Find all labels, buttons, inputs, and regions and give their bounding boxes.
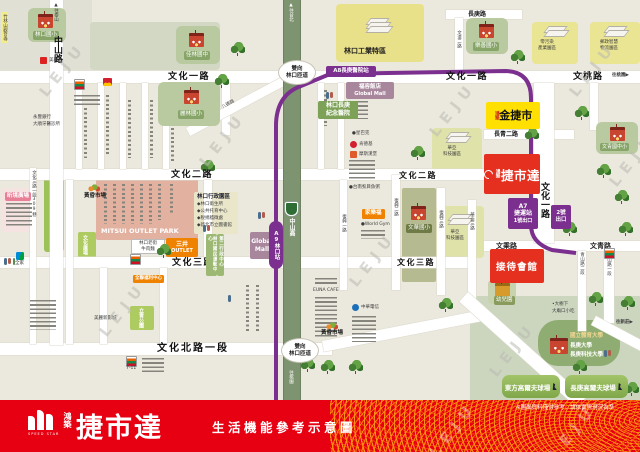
admin-bullet-3: ◆稅捐稽徵處 xyxy=(197,217,223,222)
school-jialin-jh-label: 佳林國中 xyxy=(184,51,210,60)
road-label-wenhua2-a: 文化二路 xyxy=(171,171,213,180)
tree-icon xyxy=(596,164,611,176)
brand-prefix: 鴻築 xyxy=(62,412,73,428)
treefood-label1: •大樹下 xyxy=(552,303,568,308)
worldgym-label: ●World Gym xyxy=(361,223,390,228)
ramp-south: 雙向 林口匝道 xyxy=(281,338,319,363)
logo-subtext: SPEED STAR xyxy=(28,432,59,436)
golf-east-button: 東方高爾夫球場 xyxy=(502,375,560,398)
post-logistics-label: 郵政智慧 物流園區 xyxy=(600,40,618,52)
people-icons xyxy=(258,212,265,219)
admin-park-title: 林口行政園區 xyxy=(197,195,230,201)
road-label-changqing2: 長青二路 xyxy=(494,132,518,138)
doctor-icons xyxy=(326,92,333,99)
mcdonalds-icon xyxy=(103,78,112,86)
ramp-north: 雙向 林口匝道 xyxy=(278,60,316,85)
project-jieshida-box: 鴻築 捷市達 xyxy=(484,154,540,194)
tree-icon xyxy=(348,360,363,372)
brand-banner: LEJU LEJU SPEED STAR 鴻築 捷市達 生活機能參考示意圖 ※圖… xyxy=(0,400,640,452)
road-label-wendao2: 文道二路 xyxy=(456,30,461,48)
road-label-huaya3: 華亞三路 xyxy=(469,212,474,230)
sports-center-label: 林口國民運動中心 xyxy=(206,234,217,276)
road-label-lane309: 文化三路一段309巷 xyxy=(31,170,36,217)
location-map-flyer: 中山高 ▲往台北 往桃園 雙向 林口匝道 雙向 林口匝道 A8長庚醫院站 A9林… xyxy=(0,0,640,452)
dir-taoyuan-south: 往桃園 xyxy=(288,370,293,384)
highway-shield-icon xyxy=(285,202,298,216)
seven-eleven-icon xyxy=(74,79,85,90)
kfc-label: 肯德基 xyxy=(359,143,373,148)
people-icons xyxy=(4,258,15,265)
road-label-wenhua1-v: 文化一路 xyxy=(539,182,548,218)
uni-cgu: 長庚大學 xyxy=(570,344,592,350)
people-icons xyxy=(228,295,231,302)
road-label-fuxing1: 復興一路 xyxy=(341,214,346,232)
road-label-qingshan2: 青山路二段 xyxy=(579,252,584,275)
dir-taishan: ▲往泰山 xyxy=(53,3,58,22)
family-label: 全家 xyxy=(15,262,24,267)
project-goldcity-prefix: 鴻築 xyxy=(494,111,499,120)
hospital-label: 林口長庚 xyxy=(326,102,350,110)
pxmart-box: 全聯福利中心 xyxy=(133,275,164,283)
globalmall-label: Mall xyxy=(255,246,269,254)
market2-label: 黃昏市場 xyxy=(321,331,343,337)
mrt-a9-station: A9林口站 xyxy=(269,221,283,269)
golf-changgeng-label: 長庚高爾夫球場 xyxy=(570,382,616,392)
road-label-wenhua1-b: 文化一路 xyxy=(446,73,488,82)
map-canvas: 中山高 ▲往台北 往桃園 雙向 林口匝道 雙向 林口匝道 A8長庚醫院站 A9林… xyxy=(0,0,640,400)
mrt-exit2-label: 2號 xyxy=(556,210,565,217)
huaya-line2: 科技園區 xyxy=(446,236,464,242)
zero-line2: 產業園區 xyxy=(538,46,556,52)
tree-icon xyxy=(510,50,525,62)
uni-cgust: 長庚科技大學 xyxy=(570,353,603,359)
ramp-text: 雙向 xyxy=(294,344,305,351)
meilian-label: 美聯社 xyxy=(49,59,63,64)
kfc-icon xyxy=(350,141,357,148)
zero-line1: 零污染 xyxy=(538,40,556,46)
treefood-label2: 大廟口小吃 xyxy=(552,310,575,315)
golf-east-label: 東方高爾夫球場 xyxy=(505,382,551,392)
mos-label: 摩斯漢堡 xyxy=(359,153,377,158)
school-wenhua-es-label: 文華國小 xyxy=(406,224,432,233)
ramp-text: 林口匝道 xyxy=(286,73,308,80)
dir-taoyuan-east: 往桃園▶ xyxy=(612,74,629,79)
hospital-box: 林口長庚 紀念醫院 xyxy=(318,101,358,119)
meilian-icon xyxy=(40,57,47,64)
towers-logo-icon xyxy=(28,408,58,430)
liqing-park-label: 立青公園 xyxy=(138,308,143,328)
bank-label: 永豐銀行 xyxy=(33,116,51,121)
post-line1: 郵政智慧 xyxy=(600,40,618,46)
zero-pollution-label: 零污染 產業園區 xyxy=(538,40,556,52)
fullon-label: 福容飯店 xyxy=(359,84,381,91)
admin-bullet-2: ◆公共托育中心 xyxy=(197,210,227,215)
highway-label: 中山高 xyxy=(288,218,294,236)
mitsui-zh-label: 三井 xyxy=(176,241,188,248)
admin-bullet-1: ◆林口衛生所 xyxy=(197,203,223,208)
hospital-label: 紀念醫院 xyxy=(326,110,350,118)
school-wenqing-label: 文青國中小 xyxy=(600,143,629,151)
uni-ntsu: 國立體育大學 xyxy=(570,334,603,340)
people-icons xyxy=(203,225,210,232)
meilixin-label: 美麗新影城 xyxy=(94,317,117,322)
road-label-wenhua2-b: 文化二路 xyxy=(399,172,437,180)
euna-cafe-label: EUNA CAFE xyxy=(313,289,339,294)
project-goldcity-box: 鴻築 金捷市 xyxy=(486,102,540,129)
starbucks-label: ●星巴克 xyxy=(352,132,369,137)
brand-logo: SPEED STAR xyxy=(28,408,59,436)
golf-changgeng-button: 長庚高爾夫球場 xyxy=(565,375,628,398)
project-goldcity-name: 金捷市 xyxy=(499,110,532,121)
banner-disclaimer: ※圖面資料僅供參考，請依實際現況為準 xyxy=(516,403,614,411)
mrt-exit2-label: 出口 xyxy=(555,217,566,224)
market-veggie-icon xyxy=(88,184,100,192)
market-veggie-icon xyxy=(326,322,338,330)
road-label-changgeng: 長庚路 xyxy=(468,12,486,18)
seven-eleven-icon xyxy=(604,248,615,259)
seven-eleven-icon xyxy=(130,254,141,265)
familymart-icon xyxy=(16,252,24,260)
dir-taipei: ▲往台北 xyxy=(288,3,293,22)
cht-icon xyxy=(352,304,359,311)
huaya-south-label: 華亞 科技園區 xyxy=(446,230,464,242)
kindergarten-label: 幼兒園 xyxy=(494,296,515,305)
post-line2: 物流園區 xyxy=(600,46,618,52)
brand-name: 捷市達 xyxy=(76,406,163,445)
reception-center-label: 接待會館 xyxy=(496,259,538,273)
mos-burger-icon xyxy=(350,151,357,158)
road-label-wenhua1-a: 文化一路 xyxy=(168,73,210,82)
mrt-a7-station-exit1: A7 捷運站 1號出口 xyxy=(508,198,538,229)
road-label-wenhua3-b: 文化三路 xyxy=(397,259,435,267)
school-leshan-es-label: 樂善國小 xyxy=(473,42,499,51)
road-label-fuxing3: 復興三路 xyxy=(438,210,443,228)
tree-icon xyxy=(320,360,335,372)
dir-xinzhuang: 往新莊▶ xyxy=(616,321,633,326)
dentist-label: 大順牙醫診所 xyxy=(33,123,60,128)
mrt-a7-exit2: 2號 出口 xyxy=(551,205,571,229)
tree-icon xyxy=(410,146,425,158)
industry-label: 林口工業特區 xyxy=(344,48,386,55)
cht-label: 中華電信 xyxy=(361,306,379,311)
mrt-a7-label: 捷運站 xyxy=(514,210,532,218)
second-admin-label: 第二行政中心 xyxy=(217,234,224,276)
beef-noodle-label: 牛肉麵 xyxy=(141,247,155,252)
huaya-north-label: 華亞 科技園區 xyxy=(443,146,461,158)
market1-label: 黃昏市場 xyxy=(84,194,106,200)
tree-icon xyxy=(614,190,629,202)
road-label-fuxing2: 復興二路 xyxy=(393,198,398,216)
tree-icon xyxy=(214,74,229,86)
project-jieshida-prefix: 鴻築 xyxy=(494,169,500,178)
people-icons xyxy=(604,350,611,357)
reception-center-box: 接待會館 xyxy=(490,249,544,283)
tree-icon xyxy=(588,292,603,304)
mrt-a8-label: A8長庚醫院站 xyxy=(333,68,369,75)
mrt-a9-label: A9林口站 xyxy=(273,231,280,260)
tree-icon xyxy=(230,42,245,54)
globalmall-label: Global Mall xyxy=(354,91,385,98)
mrt-a8-station: A8長庚醫院站 xyxy=(326,66,376,77)
mrt-a7-label: 1號出口 xyxy=(514,218,532,224)
tree-icon xyxy=(620,296,635,308)
road-label-wenhuabei: 文化北路一段 xyxy=(157,344,229,354)
tree-icon xyxy=(156,244,171,256)
ramp-text: 雙向 xyxy=(291,66,302,73)
wenhua-plaza-label: 文化廣場 xyxy=(82,235,87,255)
tree-icon xyxy=(618,222,633,234)
ramp-text: 林口匝道 xyxy=(289,351,311,358)
tree-icon xyxy=(574,106,589,118)
tree-icon xyxy=(572,360,587,372)
carrefour-box: 家樂福 xyxy=(362,209,385,219)
crescent-logo-icon xyxy=(482,168,495,181)
banner-slogan: 生活機能參考示意圖 xyxy=(212,417,356,436)
tree-icon xyxy=(524,128,539,140)
school-lilin-es-label: 麗林國小 xyxy=(178,110,204,119)
huaya-line2: 科技園區 xyxy=(443,152,461,158)
temple-label: 竹林山觀音寺 xyxy=(1,12,8,43)
fullon-globalmall-box: 福容飯店 Global Mall xyxy=(346,82,394,99)
mitsui-en-label: OUTLET xyxy=(171,248,193,254)
fishporridge-label: ●台南虱目魚粥 xyxy=(349,186,380,191)
seven-label: 7-11 xyxy=(126,367,136,372)
project-jieshida-name: 捷市達 xyxy=(501,165,540,184)
xinjing-plaza-label: 昕境廣場 xyxy=(5,192,31,201)
tree-icon xyxy=(438,298,453,310)
linkou-park-label: 林口公園 xyxy=(49,190,55,214)
road-label-wentao: 文桃路 xyxy=(573,73,603,82)
